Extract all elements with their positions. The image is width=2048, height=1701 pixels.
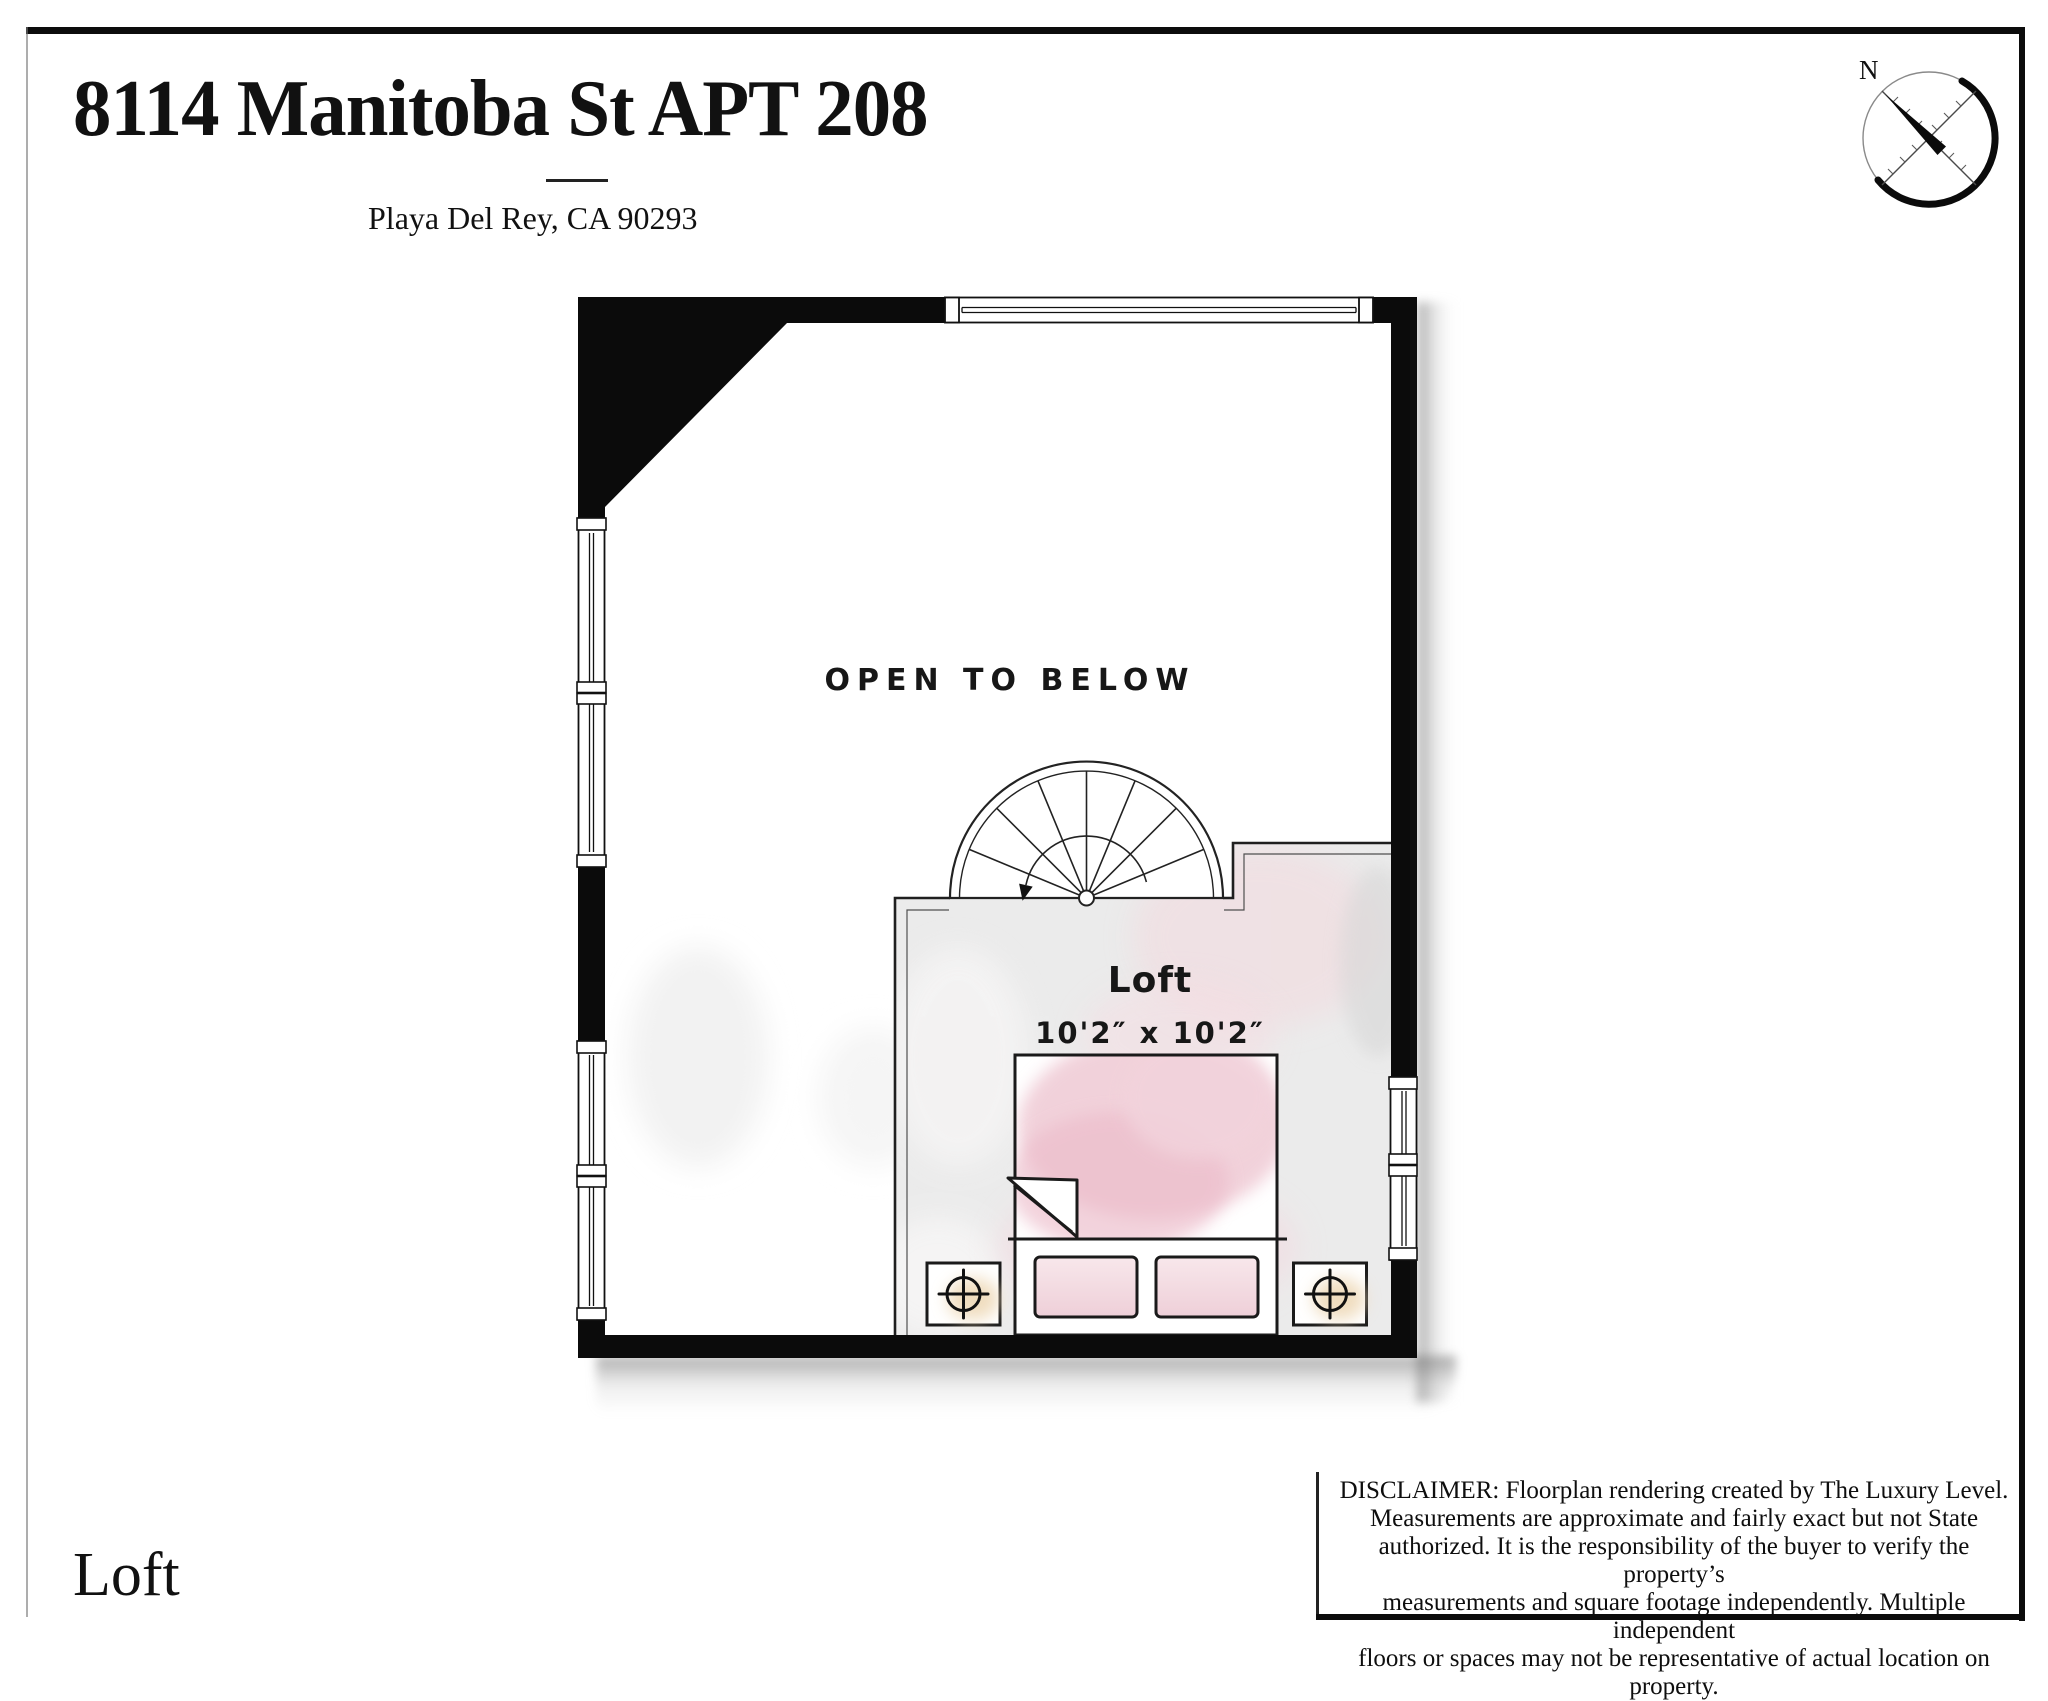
disclaimer-line: DISCLAIMER: Floorplan rendering created … [1332,1477,2016,1505]
stair-center-post [1079,891,1094,906]
pillow-left [1035,1257,1137,1317]
page-frame-right [2019,27,2025,1621]
open-area-wash [628,947,928,1167]
disclaimer-line: measurements and square footage independ… [1332,1589,2016,1645]
left-window-lower [577,1041,606,1320]
title-divider [546,179,608,182]
nightstand-left [927,1263,1000,1325]
compass-rose-icon: N [1845,45,2010,220]
right-window [1389,1077,1417,1260]
wall-top-left-chamfer [578,297,945,518]
disclaimer-left-border [1316,1472,1319,1618]
left-window-upper [577,518,606,867]
loft-room-label: Loft [1108,960,1193,1001]
spiral-staircase [950,762,1223,906]
disclaimer-block: DISCLAIMER: Floorplan rendering created … [1332,1477,2016,1701]
disclaimer-line: authorized. It is the responsibility of … [1332,1533,2016,1589]
compass-needle [1885,94,1946,155]
disclaimer-line: floors or spaces may not be representati… [1332,1645,2016,1701]
page-frame-top [26,27,2024,34]
page-title: 8114 Manitoba St APT 208 [73,64,928,155]
plan-shadow-right [1417,302,1459,1402]
loft-room-dimensions: 10'2″ x 10'2″ [1035,1016,1265,1050]
plan-shadow-bottom [596,1356,1456,1414]
nightstand-right [1294,1263,1367,1325]
floorplan: OPEN TO BELOW Loft 10'2″ x 10'2″ [578,297,1417,1358]
open-to-below-label: OPEN TO BELOW [825,663,1196,698]
pillow-right [1156,1257,1258,1317]
bed [998,1035,1298,1335]
floor-name-label: Loft [73,1540,180,1611]
compass-north-label: N [1859,55,1879,85]
top-window [945,298,1373,323]
page-frame-left [26,27,28,1617]
page-subtitle: Playa Del Rey, CA 90293 [368,200,697,237]
disclaimer-line: Measurements are approximate and fairly … [1332,1505,2016,1533]
